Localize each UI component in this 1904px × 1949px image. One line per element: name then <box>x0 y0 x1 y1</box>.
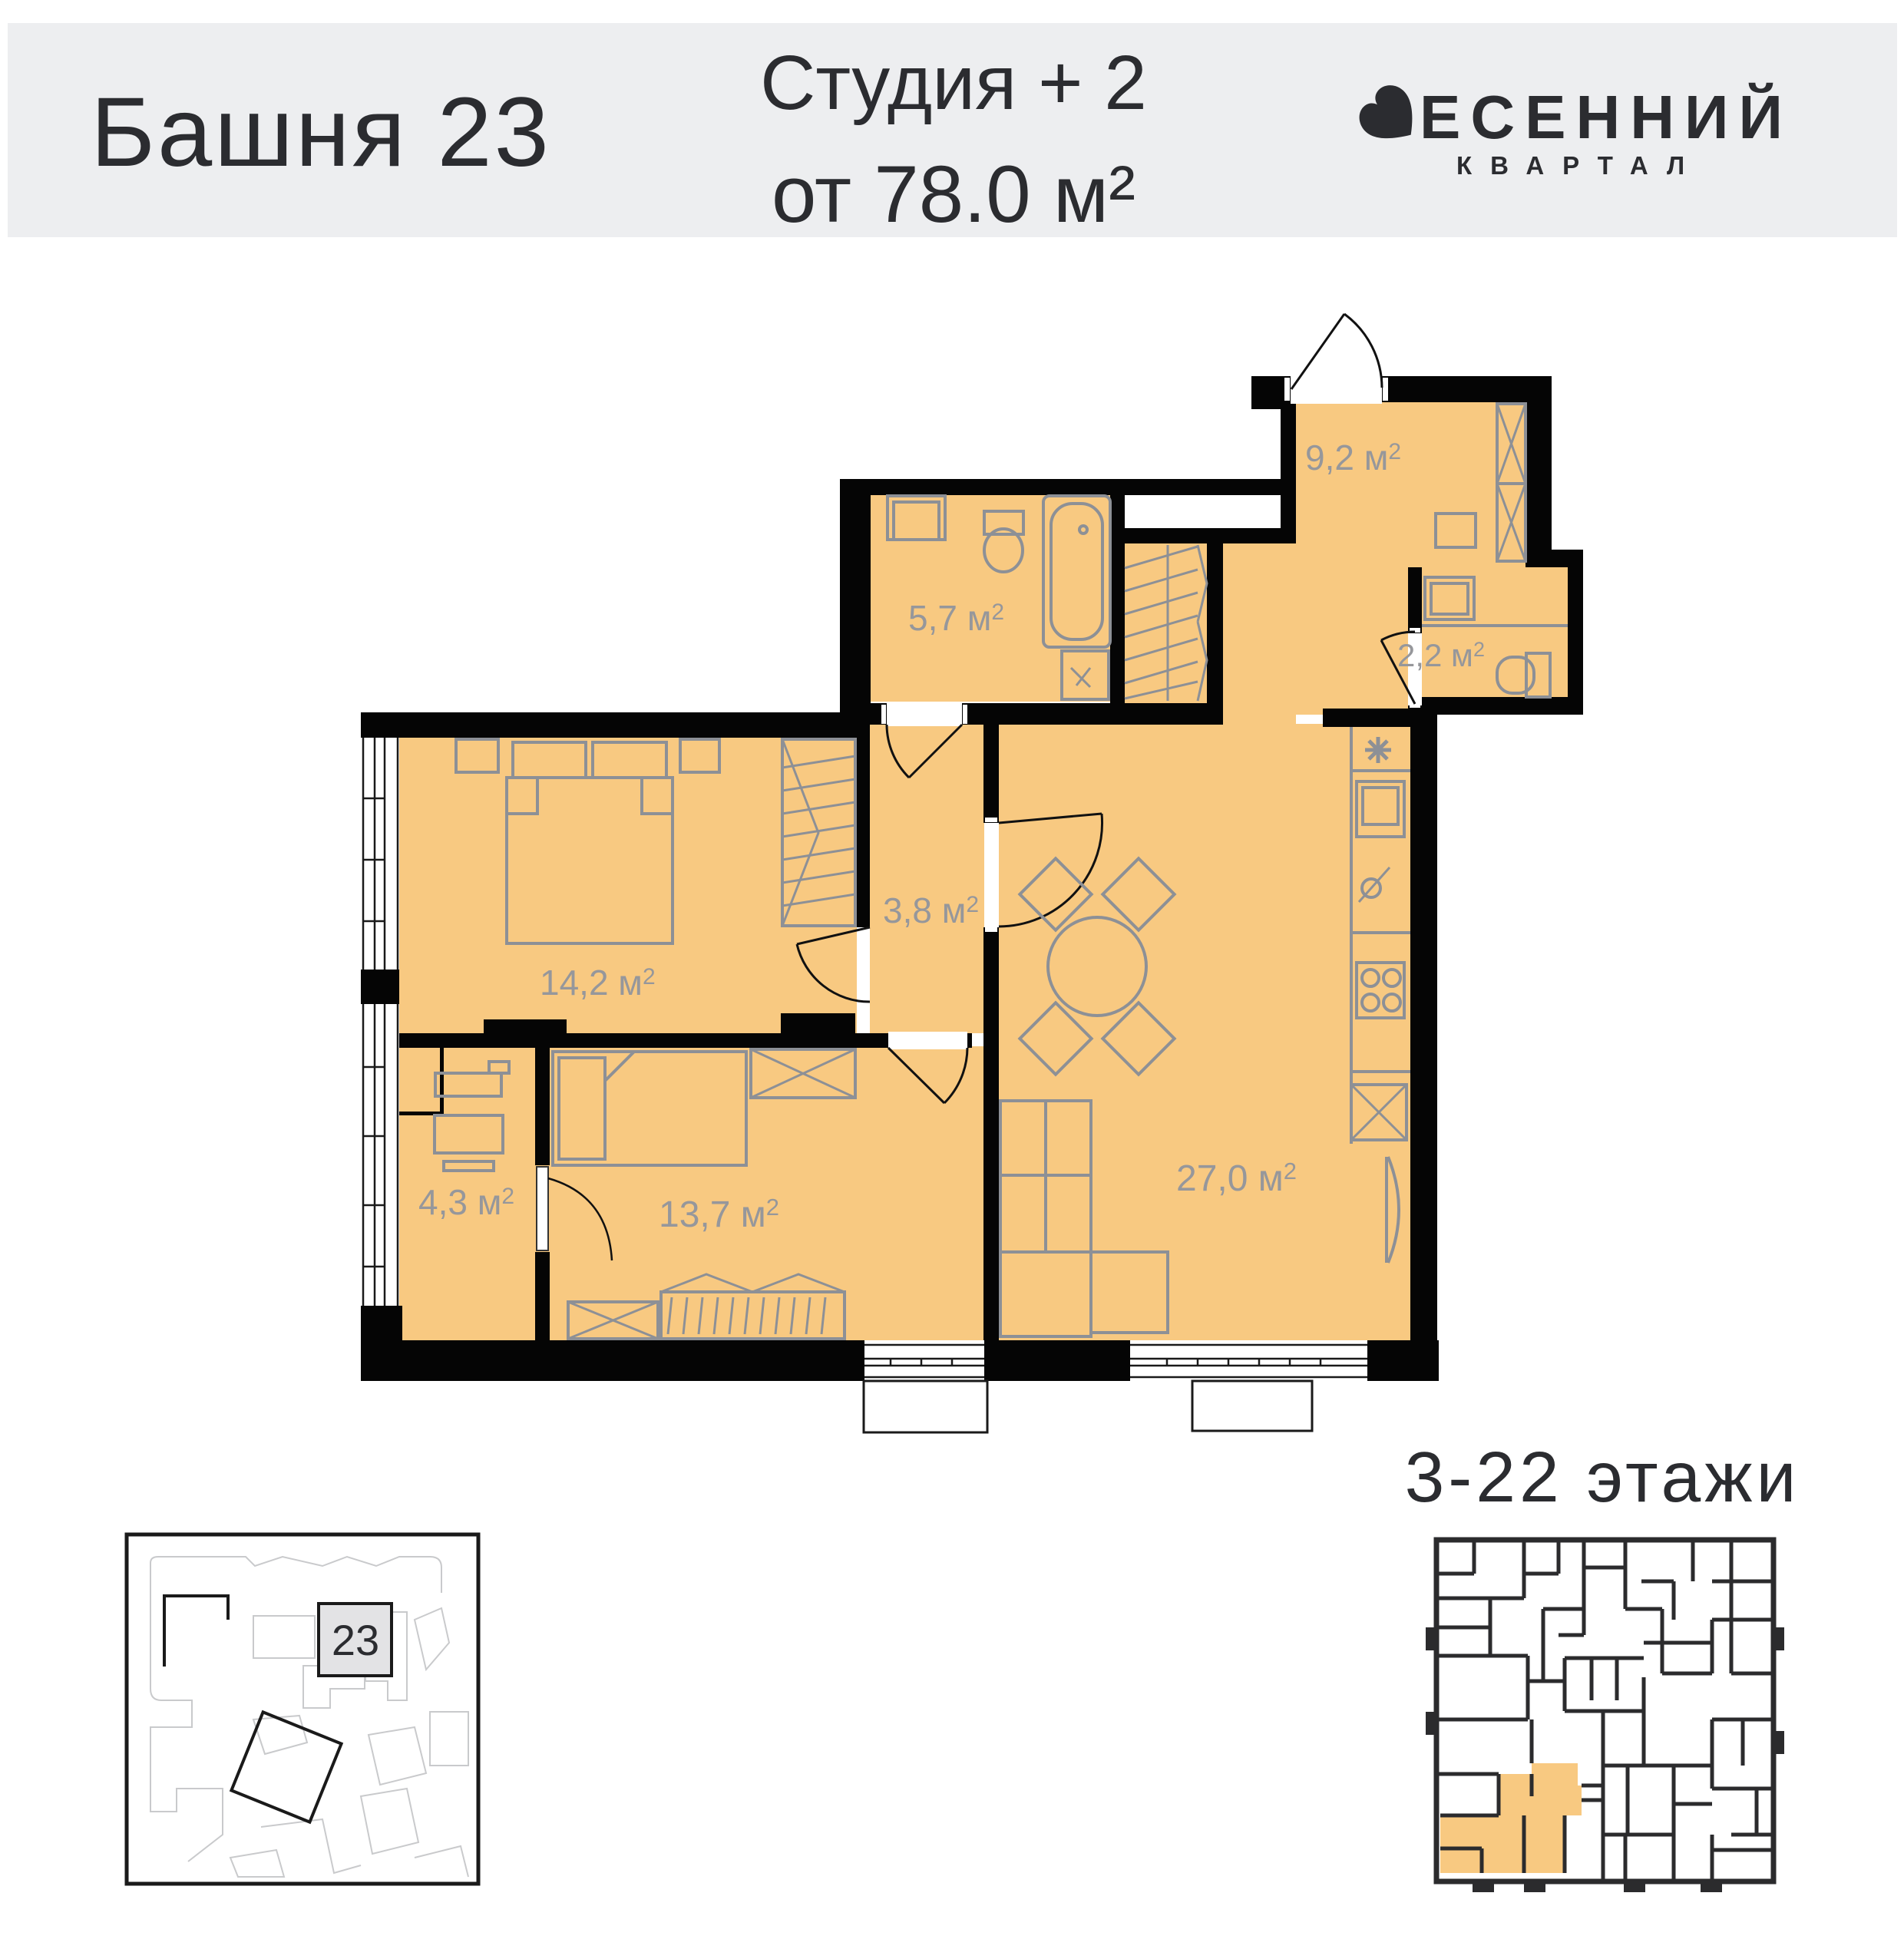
svg-text:4,3 м2: 4,3 м2 <box>418 1182 514 1222</box>
svg-text:3-22 этажи: 3-22 этажи <box>1405 1437 1800 1517</box>
svg-text:от 78.0 м²: от 78.0 м² <box>772 150 1135 239</box>
svg-text:23: 23 <box>332 1616 379 1664</box>
svg-text:13,7 м2: 13,7 м2 <box>659 1194 779 1235</box>
svg-text:2,2 м2: 2,2 м2 <box>1397 637 1485 673</box>
svg-text:5,7 м2: 5,7 м2 <box>908 598 1004 638</box>
svg-text:ЕСЕННИЙ: ЕСЕННИЙ <box>1420 82 1793 151</box>
svg-text:14,2 м2: 14,2 м2 <box>540 963 656 1003</box>
svg-text:КВАРТАЛ: КВАРТАЛ <box>1456 151 1703 180</box>
svg-text:Студия + 2: Студия + 2 <box>760 40 1147 126</box>
svg-text:27,0 м2: 27,0 м2 <box>1176 1158 1297 1199</box>
svg-text:Башня 23: Башня 23 <box>91 78 551 187</box>
svg-text:3,8 м2: 3,8 м2 <box>883 890 979 930</box>
svg-text:9,2 м2: 9,2 м2 <box>1305 438 1401 477</box>
